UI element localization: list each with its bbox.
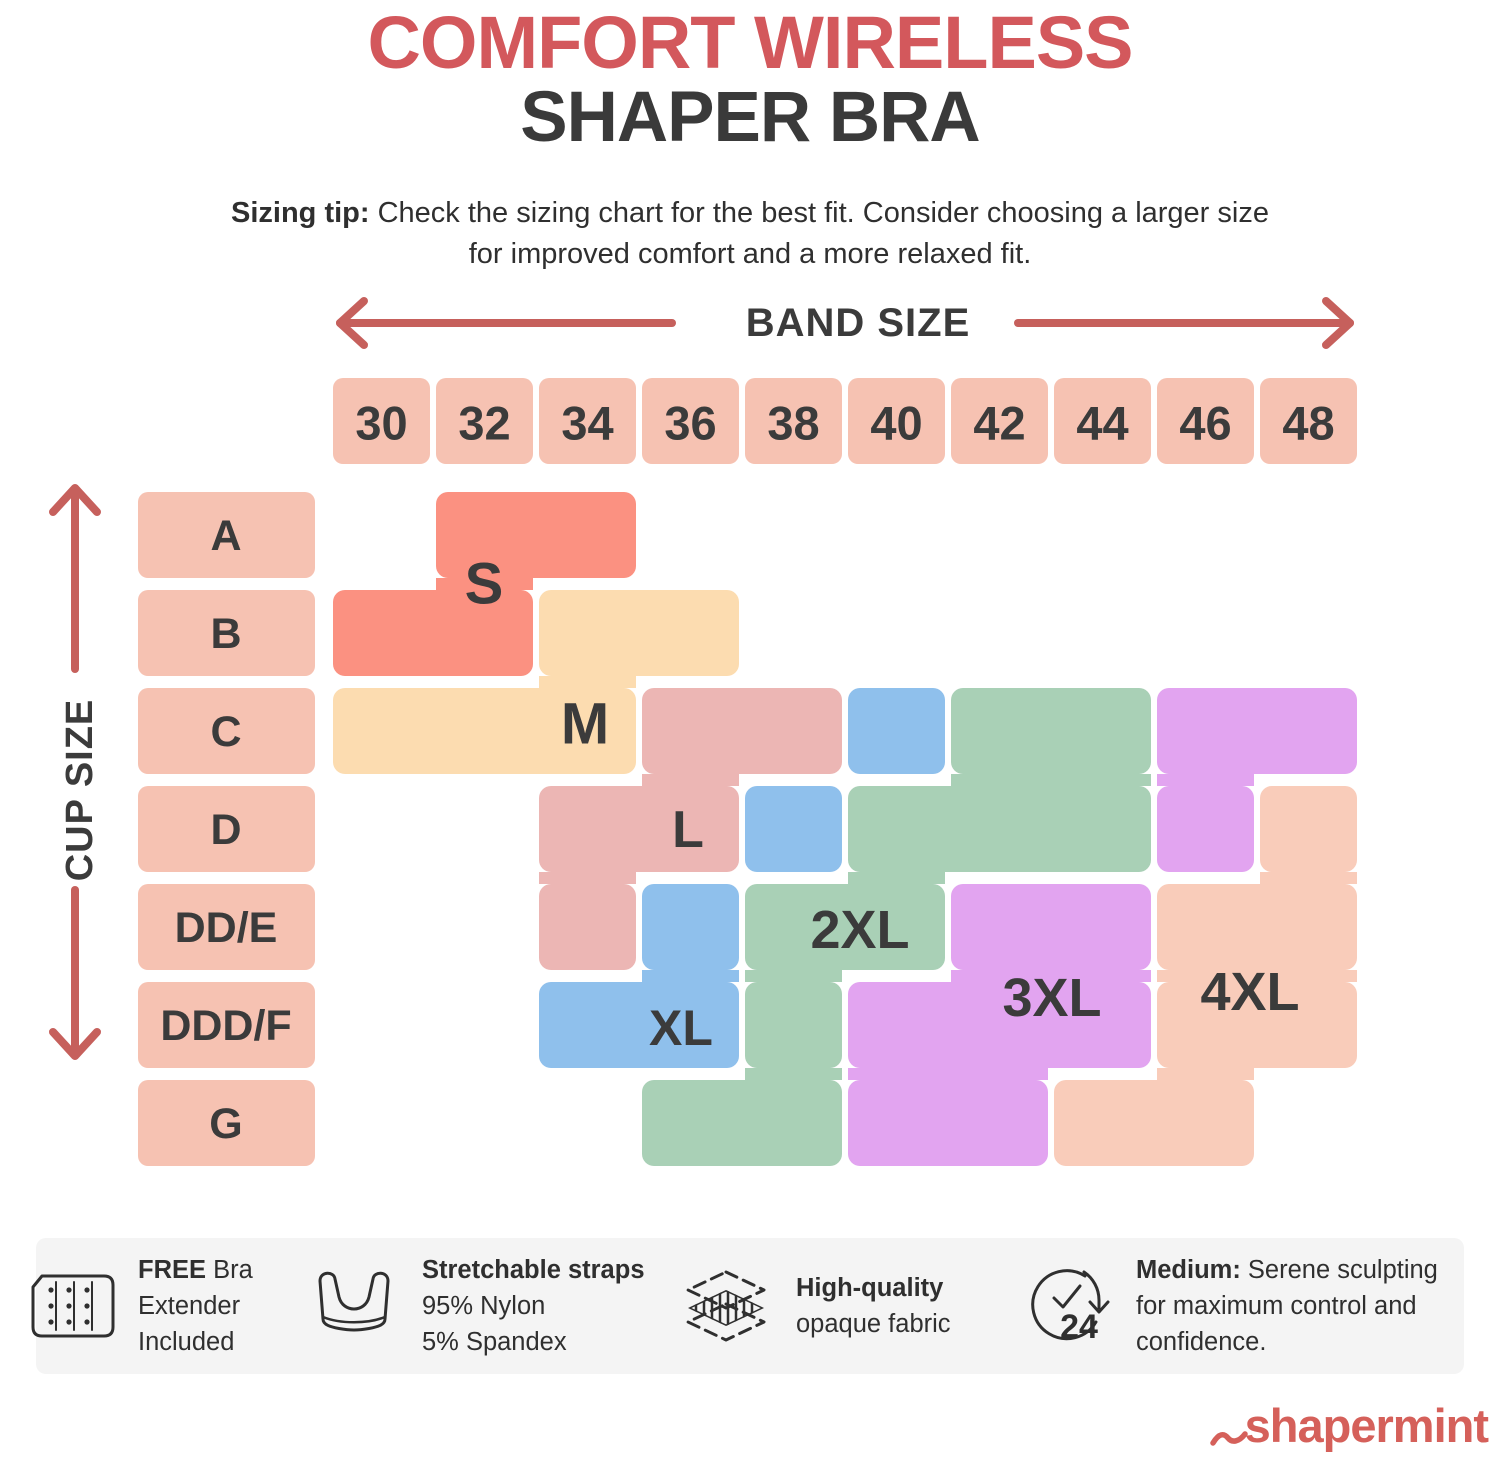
feature-bra-extender: FREE Bra Extender Included <box>30 1244 253 1368</box>
cup-cell-label: G <box>209 1100 242 1148</box>
size-label-4XL: 4XL <box>1200 962 1299 1022</box>
feature-text: FREE Bra Extender Included <box>138 1252 253 1360</box>
brand-logo-text: shapermint <box>1245 1398 1488 1453</box>
cup-cell-label: DD/E <box>175 904 278 952</box>
feature-medium-control: 24 Medium: Serene sculpting for maximum … <box>1022 1244 1438 1368</box>
band-cell-label: 40 <box>870 397 922 450</box>
band-cell-label: 34 <box>561 397 613 450</box>
size-label-XL: XL <box>649 1000 713 1056</box>
band-cell-label: 46 <box>1179 397 1231 450</box>
size-chart-infographic: COMFORT WIRELESS SHAPER BRA Sizing tip: … <box>0 0 1500 1469</box>
feature-text: Medium: Serene sculpting for maximum con… <box>1136 1252 1438 1360</box>
clock-24-icon: 24 <box>1022 1264 1114 1348</box>
band-cell-label: 42 <box>973 397 1025 450</box>
bra-icon <box>308 1267 400 1345</box>
cup-cell-label: DDD/F <box>160 1002 291 1050</box>
band-size-axis-label: BAND SIZE <box>746 301 971 345</box>
size-label-S: S <box>465 552 504 617</box>
cup-cell-label: C <box>210 708 241 756</box>
feature-stretch-straps: Stretchable straps 95% Nylon 5% Spandex <box>308 1244 645 1368</box>
logo-swoosh-icon <box>1210 1426 1248 1448</box>
cup-size-axis-label: CUP SIZE <box>59 699 101 882</box>
band-cell-label: 48 <box>1282 397 1334 450</box>
band-cell-label: 30 <box>355 397 407 450</box>
band-cell-label: 36 <box>664 397 716 450</box>
feature-opaque-fabric: High-quality opaque fabric <box>678 1244 951 1368</box>
cup-cell-label: B <box>210 610 241 658</box>
feature-text: High-quality opaque fabric <box>796 1270 951 1342</box>
cup-cell-label: A <box>210 512 241 560</box>
fabric-layers-icon <box>678 1268 774 1344</box>
size-label-M: M <box>561 692 609 757</box>
feature-text: Stretchable straps 95% Nylon 5% Spandex <box>422 1252 645 1360</box>
band-cell-label: 44 <box>1076 397 1128 450</box>
size-chart-svg: BAND SIZE30323436384042444648CUP SIZEABC… <box>0 0 1500 1230</box>
size-label-L: L <box>672 801 704 859</box>
size-label-2XL: 2XL <box>810 900 909 960</box>
cup-cell-label: D <box>210 806 241 854</box>
bra-extender-icon <box>30 1273 116 1339</box>
band-cell-label: 38 <box>767 397 819 450</box>
size-label-3XL: 3XL <box>1002 968 1101 1028</box>
band-cell-label: 32 <box>458 397 510 450</box>
clock-24-number: 24 <box>1060 1308 1098 1346</box>
brand-logo: shapermint <box>1210 1398 1488 1453</box>
